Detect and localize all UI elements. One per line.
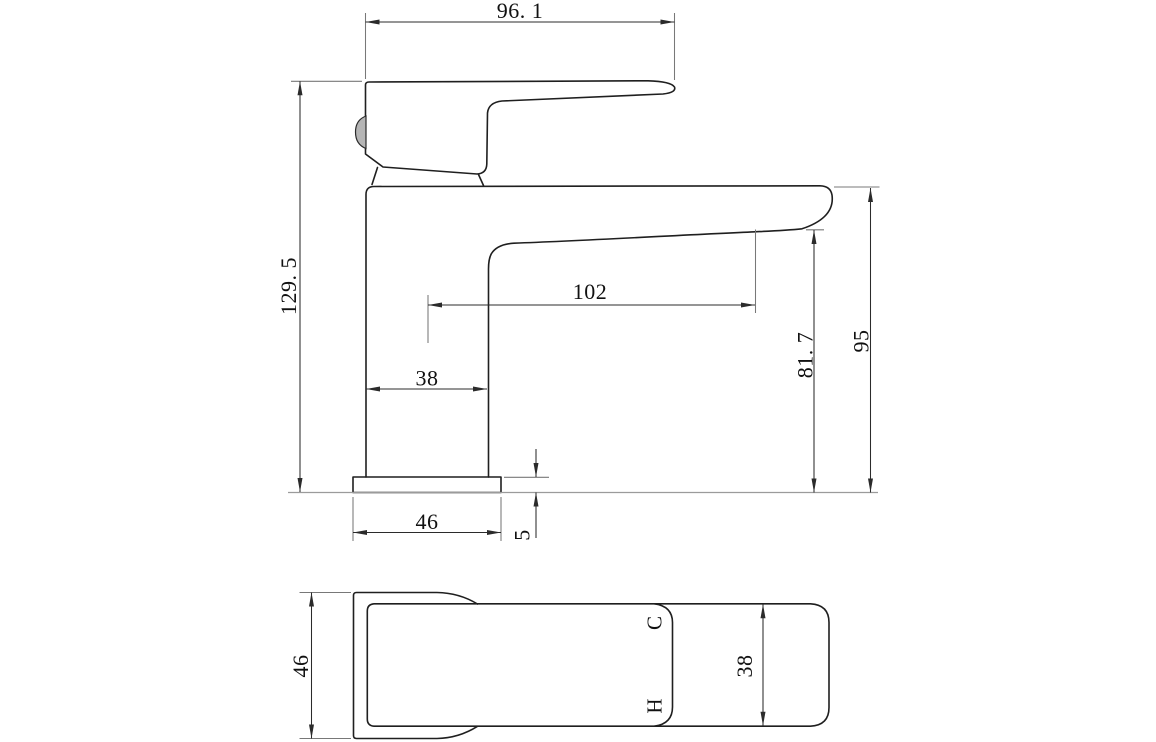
dim-label-46-side: 46 xyxy=(416,509,439,534)
dimension-plan-width: 38 xyxy=(732,604,766,726)
dim-label-46-plan: 46 xyxy=(288,655,313,678)
handle-indicator-button xyxy=(356,116,367,149)
dim-label-38-plan: 38 xyxy=(732,655,757,678)
drawing-canvas: 96. 1 129. 5 102 38 xyxy=(0,0,1156,742)
dimension-overall-height: 129. 5 xyxy=(276,81,362,492)
dim-label-96-1: 96. 1 xyxy=(497,0,544,23)
plan-spout-outline xyxy=(367,604,829,726)
base-plate xyxy=(353,477,501,493)
dimension-spout-height: 95 xyxy=(834,187,880,493)
plan-base-plate xyxy=(354,593,478,739)
dimension-outlet-height: 81. 7 xyxy=(793,230,825,493)
handle-outline xyxy=(366,81,675,174)
dim-label-102: 102 xyxy=(573,279,608,304)
dimension-base-thickness: 5 xyxy=(504,449,549,541)
plan-view: C H 46 38 xyxy=(288,593,829,739)
dimension-base-width: 46 xyxy=(353,497,501,541)
cold-port-label: C xyxy=(643,616,667,630)
dimension-handle-length: 96. 1 xyxy=(366,0,675,80)
faucet-technical-drawing: 96. 1 129. 5 102 38 xyxy=(0,0,1156,742)
dimension-spout-reach: 102 xyxy=(428,230,756,344)
hot-port-label: H xyxy=(643,698,667,713)
neck-right-edge xyxy=(479,175,484,186)
dim-label-95: 95 xyxy=(849,330,874,353)
body-spout-outline xyxy=(366,186,832,477)
dim-label-81-7: 81. 7 xyxy=(793,332,818,379)
dim-label-5: 5 xyxy=(510,529,535,541)
neck-left-edge xyxy=(372,168,378,185)
dimension-body-width: 38 xyxy=(366,366,487,392)
dim-label-129-5: 129. 5 xyxy=(276,257,301,315)
dim-label-38-side: 38 xyxy=(416,366,439,391)
dimension-plan-depth: 46 xyxy=(288,593,351,739)
side-view: 96. 1 129. 5 102 38 xyxy=(276,0,880,541)
